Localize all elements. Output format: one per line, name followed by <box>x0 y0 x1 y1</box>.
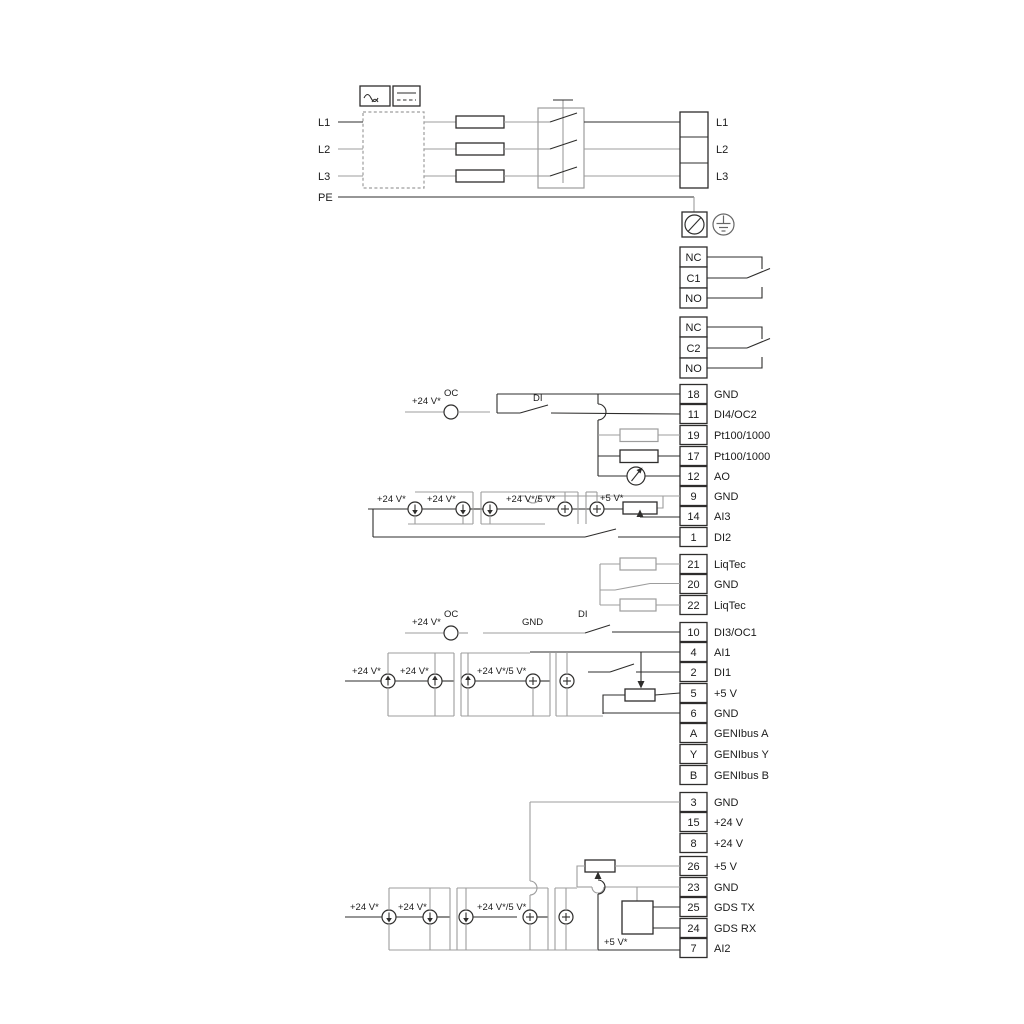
terminal-number: 2 <box>690 667 696 679</box>
mains-input-label-l2: L2 <box>318 144 330 156</box>
voltage-source-icon <box>590 502 604 516</box>
oc-node-icon <box>444 405 458 419</box>
current-source-up-icon <box>381 674 395 688</box>
oc-node-icon <box>444 626 458 640</box>
terminal-label: GND <box>714 708 739 720</box>
terminal-label: +24 V <box>714 838 744 850</box>
terminal-label: +5 V <box>714 861 738 873</box>
ac-symbol-box <box>360 86 390 106</box>
terminal-number: 15 <box>687 817 699 829</box>
terminal-number: 11 <box>688 409 699 421</box>
gnd-label: GND <box>522 617 543 628</box>
v24-5v-label: +24 V*/5 V* <box>506 494 556 505</box>
terminal-label: GND <box>714 797 739 809</box>
terminal-label: AI3 <box>714 511 731 523</box>
v24-label: +24 V* <box>350 902 379 913</box>
terminal-label: LiqTec <box>714 559 746 571</box>
mains-output-label-l2: L2 <box>716 144 728 156</box>
terminal-label: GND <box>714 882 739 894</box>
di-label: DI <box>578 609 588 620</box>
terminal-label: GENIbus B <box>714 770 769 782</box>
current-source-down-icon <box>483 502 497 516</box>
terminal-label: GND <box>714 579 739 591</box>
pt100-sensor-2 <box>620 450 658 463</box>
current-source-up-icon <box>461 674 475 688</box>
v5-label: +5 V* <box>604 937 628 948</box>
potentiometer <box>625 689 655 701</box>
mains-input-label-pe: PE <box>318 192 333 204</box>
terminal-label: GND <box>714 491 739 503</box>
terminal-label: AO <box>714 471 730 483</box>
terminal-label: AI2 <box>714 943 731 955</box>
terminal-label: DI3/OC1 <box>714 627 757 639</box>
terminal-number: 18 <box>687 389 699 401</box>
terminal-label: GDS RX <box>714 923 757 935</box>
terminal-number: 25 <box>687 902 699 914</box>
ao-meter-icon <box>627 467 645 485</box>
terminal-number: 7 <box>690 943 696 955</box>
fuse-l1 <box>456 116 504 128</box>
voltage-source-icon <box>560 674 574 688</box>
terminal-label: DI1 <box>714 667 731 679</box>
terminal-number: 14 <box>687 511 699 523</box>
terminal-number: 3 <box>690 797 696 809</box>
terminal-label: Pt100/1000 <box>714 451 770 463</box>
v24-5v-label: +24 V*/5 V* <box>477 666 527 677</box>
mains-input-label-l1: L1 <box>318 117 330 129</box>
relay1-nc-label: NC <box>686 252 702 264</box>
terminal-number: 24 <box>687 923 699 935</box>
terminal-label: Pt100/1000 <box>714 430 770 442</box>
fuse-l2 <box>456 143 504 155</box>
terminal-number: 6 <box>690 708 696 720</box>
oc-label: OC <box>444 388 458 399</box>
potentiometer <box>585 860 615 872</box>
relay1-no-label: NO <box>685 293 702 305</box>
terminal-label: AI1 <box>714 647 731 659</box>
terminal-number: 5 <box>690 688 696 700</box>
terminal-label: DI2 <box>714 532 731 544</box>
current-source-down-icon <box>423 910 437 924</box>
pe-terminal <box>682 212 707 237</box>
terminal-label: GENIbus A <box>714 728 769 740</box>
current-source-down-icon <box>408 502 422 516</box>
terminal-number: 10 <box>687 627 699 639</box>
terminal-label: DI4/OC2 <box>714 409 757 421</box>
terminal-number: 17 <box>687 451 699 463</box>
relay1-c1-label: C1 <box>686 273 700 285</box>
terminal-number: Y <box>690 749 698 761</box>
supply-terminal-block <box>680 112 708 188</box>
v24-label: +24 V* <box>352 666 381 677</box>
page-background <box>0 0 1024 1024</box>
current-source-down-icon <box>459 910 473 924</box>
terminal-label: GENIbus Y <box>714 749 769 761</box>
relay2-c2-label: C2 <box>686 343 700 355</box>
current-source-down-icon <box>382 910 396 924</box>
voltage-source-icon <box>526 674 540 688</box>
relay2-no-label: NO <box>685 363 702 375</box>
terminal-number: 9 <box>690 491 696 503</box>
current-source-up-icon <box>428 674 442 688</box>
terminal-number: 20 <box>687 579 699 591</box>
terminal-number: 19 <box>687 430 699 442</box>
relay2-nc-label: NC <box>686 322 702 334</box>
v5-label: +5 V* <box>600 493 624 504</box>
terminal-number: A <box>690 728 698 740</box>
wiring-diagram-canvas: L1 L2 L3 PE <box>0 0 1024 1024</box>
v24-label: +24 V* <box>400 666 429 677</box>
terminal-number: 4 <box>690 647 696 659</box>
mains-input-label-l3: L3 <box>318 171 330 183</box>
di-label: DI <box>533 393 543 404</box>
liqtec-sensor-2 <box>620 599 656 611</box>
terminal-number: 8 <box>690 838 696 850</box>
dc-symbol-box <box>393 86 420 106</box>
v24-label: +24 V* <box>427 494 456 505</box>
voltage-source-icon <box>523 910 537 924</box>
fuse-l3 <box>456 170 504 182</box>
terminal-number: B <box>690 770 697 782</box>
terminal-label: GDS TX <box>714 902 755 914</box>
terminal-number: 23 <box>687 882 699 894</box>
voltage-source-icon <box>558 502 572 516</box>
terminal-label: +24 V <box>714 817 744 829</box>
oc-label: OC <box>444 609 458 620</box>
v24-label: +24 V* <box>412 396 441 407</box>
v24-label: +24 V* <box>412 617 441 628</box>
terminal-label: +5 V <box>714 688 738 700</box>
current-source-down-icon <box>456 502 470 516</box>
gds-sensor-box <box>622 901 653 934</box>
mains-output-label-l1: L1 <box>716 117 728 129</box>
mains-output-label-l3: L3 <box>716 171 728 183</box>
voltage-source-icon <box>559 910 573 924</box>
v24-label: +24 V* <box>377 494 406 505</box>
terminal-number: 1 <box>690 532 696 544</box>
terminal-number: 12 <box>687 471 699 483</box>
liqtec-sensor-1 <box>620 558 656 570</box>
terminal-number: 21 <box>687 559 699 571</box>
v24-label: +24 V* <box>398 902 427 913</box>
terminal-label: LiqTec <box>714 600 746 612</box>
pt100-sensor-1 <box>620 429 658 442</box>
terminal-label: GND <box>714 389 739 401</box>
terminal-number: 26 <box>687 861 699 873</box>
v24-5v-label: +24 V*/5 V* <box>477 902 527 913</box>
terminal-number: 22 <box>687 600 699 612</box>
liqtec-terminal-block: 21LiqTec 20GND 22LiqTec <box>680 555 746 615</box>
